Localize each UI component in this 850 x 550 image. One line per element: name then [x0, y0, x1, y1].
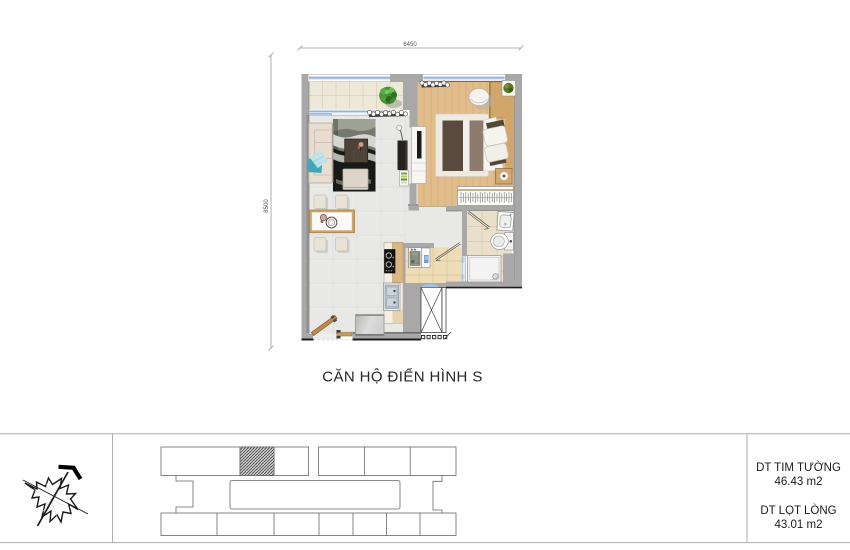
svg-text:DT TIM TƯỜNG: DT TIM TƯỜNG	[756, 461, 841, 474]
svg-text:6450: 6450	[403, 42, 417, 48]
svg-text:CĂN HỘ ĐIỂN HÌNH S: CĂN HỘ ĐIỂN HÌNH S	[322, 368, 483, 386]
svg-text:43.01 m2: 43.01 m2	[775, 519, 823, 531]
svg-text:DT LỌT LÒNG: DT LỌT LÒNG	[760, 504, 836, 517]
svg-text:46.43 m2: 46.43 m2	[775, 476, 823, 488]
svg-text:8500: 8500	[264, 199, 270, 213]
